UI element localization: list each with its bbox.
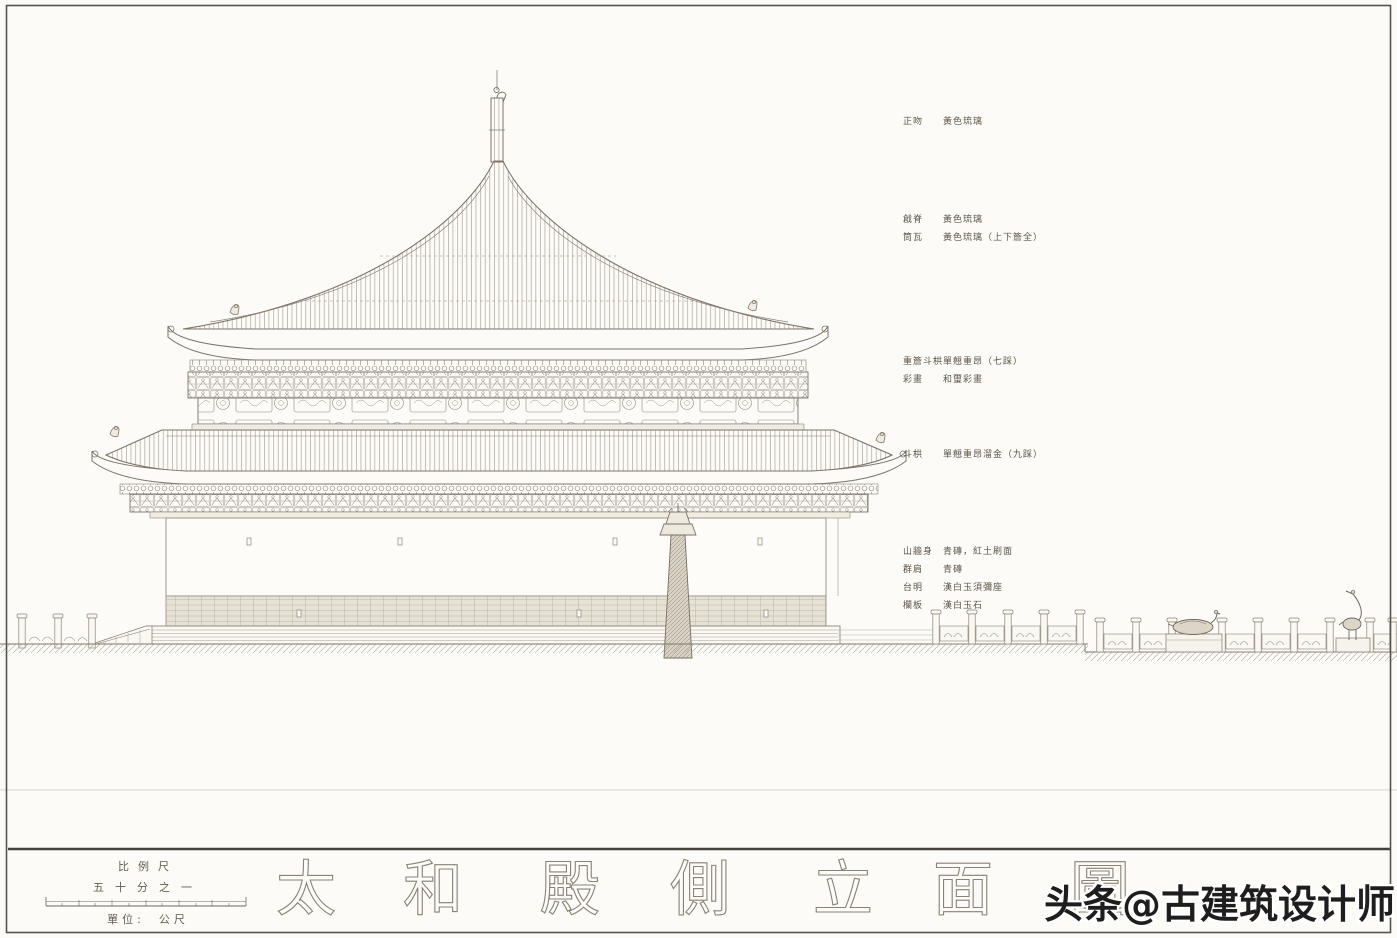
- left-stair-ramp: [92, 626, 152, 644]
- lower-dougong-band: [120, 484, 878, 518]
- annotation-value: 單翹重昂（七踩）: [943, 356, 1023, 368]
- annotation-label: 彩畫: [903, 374, 943, 386]
- scale-unit: 單位:公尺: [78, 911, 218, 927]
- upper-dougong-band: [188, 360, 808, 398]
- annotation-label: 群肩: [903, 564, 943, 576]
- title-char: 面: [933, 855, 993, 925]
- scale-ratio: 五十分之一: [58, 879, 238, 895]
- scale-unit-label: 單位:: [107, 913, 145, 926]
- elevation-drawing: 太 和 殿 側 立 面 圖: [0, 0, 1397, 938]
- annotation-label: 欄板: [903, 600, 943, 612]
- lower-roof: [106, 430, 892, 473]
- annotation-value: 漢白玉石: [943, 600, 983, 612]
- annotation-label: 山牆身: [903, 546, 943, 558]
- title-char: 和: [403, 855, 463, 925]
- title-char: 立: [813, 855, 873, 925]
- annotation-line: 山牆身 青磚，紅土刷面: [903, 546, 1013, 558]
- annotation-value: 黃色琉璃: [943, 116, 983, 128]
- scale-bar: [46, 897, 246, 906]
- terrace-balustrade-upper: [931, 610, 1088, 644]
- annotation-line: 斗栱 單翹重昂溜金（九踩）: [903, 449, 1043, 461]
- annotation-value: 黃色琉璃: [943, 214, 983, 226]
- brick-skirt: [166, 596, 826, 626]
- toutiao-watermark: 头条@古建筑设计师: [1044, 874, 1395, 930]
- gable-wall: [166, 518, 838, 596]
- title-char: 太: [276, 855, 336, 925]
- annotation-label: 台明: [903, 582, 943, 594]
- annotation-value: 和璽彩畫: [943, 374, 983, 386]
- ridge-finial: [489, 70, 506, 162]
- annotation-line: 台明 漢白玉須彌座: [903, 582, 1003, 594]
- annotation-line: 重簷斗栱 單翹重昂（七踩）: [903, 356, 1023, 368]
- platform-base: [146, 626, 935, 644]
- upper-frieze-band: [192, 398, 804, 430]
- title-char: 殿: [540, 855, 600, 925]
- annotation-label: 正吻: [903, 116, 943, 128]
- annotation-line: 彩畫 和璽彩畫: [903, 374, 983, 386]
- annotation-line: 戧脊 黃色琉璃: [903, 214, 983, 226]
- annotation-line: 正吻 黃色琉璃: [903, 116, 983, 128]
- annotation-line: 欄板 漢白玉石: [903, 600, 983, 612]
- annotation-label: 戧脊: [903, 214, 943, 226]
- annotation-line: 群肩 青磚: [903, 564, 963, 576]
- left-balustrade: [8, 614, 97, 648]
- scale-unit-value: 公尺: [159, 913, 189, 926]
- annotation-value: 青磚，紅土刷面: [943, 546, 1013, 558]
- upper-roof: [183, 161, 814, 329]
- drawing-sheet: 太 和 殿 側 立 面 圖 正吻 黃色琉璃 戧脊 黃色琉璃 筒瓦 黃色琉璃（上下…: [0, 0, 1397, 938]
- annotation-label: 重簷斗栱: [903, 356, 943, 368]
- annotation-value: 漢白玉須彌座: [943, 582, 1003, 594]
- scale-title: 比例尺: [88, 858, 208, 874]
- annotation-value: 單翹重昂溜金（九踩）: [943, 449, 1043, 461]
- annotation-value: 黃色琉璃（上下簷全）: [943, 232, 1043, 244]
- annotation-label: 筒瓦: [903, 232, 943, 244]
- annotation-label: 斗栱: [903, 449, 943, 461]
- annotation-line: 筒瓦 黃色琉璃（上下簷全）: [903, 232, 1043, 244]
- sheet-title: 太 和 殿 側 立 面 圖: [276, 855, 1130, 925]
- annotation-value: 青磚: [943, 564, 963, 576]
- title-char: 側: [670, 855, 730, 925]
